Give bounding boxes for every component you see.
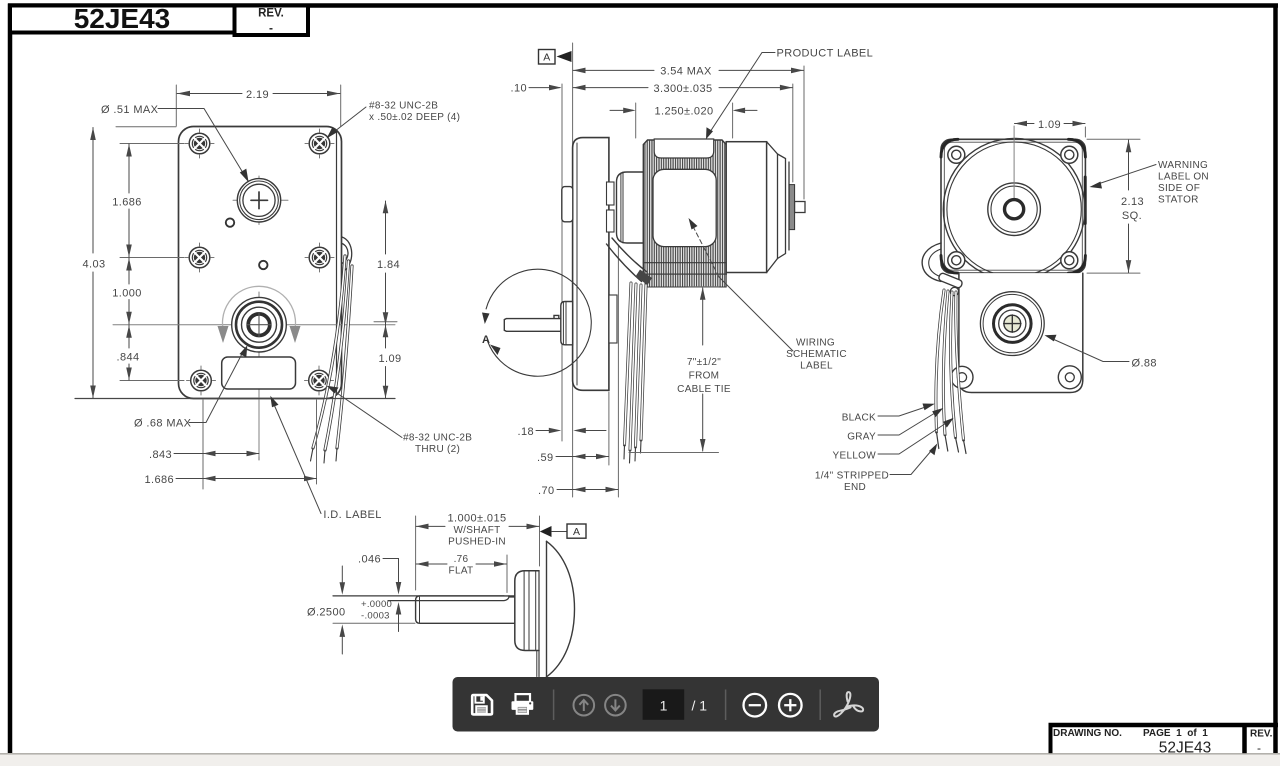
svg-text:PAGE 1 of 1: PAGE 1 of 1 xyxy=(1143,728,1208,739)
svg-text:2.19: 2.19 xyxy=(246,89,269,101)
svg-text:DRAWING NO.: DRAWING NO. xyxy=(1053,728,1122,739)
svg-text:3.54 MAX: 3.54 MAX xyxy=(660,66,712,78)
svg-text:FLAT: FLAT xyxy=(449,565,474,576)
svg-text:1.09: 1.09 xyxy=(1038,119,1061,131)
svg-text:.843: .843 xyxy=(149,449,172,461)
svg-text:1.000±.015: 1.000±.015 xyxy=(448,513,507,525)
svg-text:LABEL ON: LABEL ON xyxy=(1158,172,1209,183)
svg-text:-: - xyxy=(1257,741,1261,755)
svg-text:THRU (2): THRU (2) xyxy=(415,444,460,455)
svg-text:.76: .76 xyxy=(454,554,469,565)
svg-text:SIDE OF: SIDE OF xyxy=(1158,183,1200,194)
svg-text:Ø .51 MAX: Ø .51 MAX xyxy=(101,104,159,116)
svg-text:PRODUCT LABEL: PRODUCT LABEL xyxy=(777,48,874,60)
svg-text:REV.: REV. xyxy=(1250,729,1273,740)
svg-text:3.300±.035: 3.300±.035 xyxy=(654,83,713,95)
svg-text:1.686: 1.686 xyxy=(112,197,142,209)
svg-text:A: A xyxy=(573,526,580,538)
svg-text:FROM: FROM xyxy=(689,371,720,382)
svg-text:#8-32 UNC-2B: #8-32 UNC-2B xyxy=(369,101,438,112)
svg-text:STATOR: STATOR xyxy=(1158,195,1199,206)
svg-text:1.686: 1.686 xyxy=(144,474,174,486)
svg-text:REV.: REV. xyxy=(258,8,284,20)
svg-text:.70: .70 xyxy=(538,485,555,497)
svg-text:A: A xyxy=(482,334,490,346)
svg-text:1: 1 xyxy=(660,698,668,714)
svg-text:GRAY: GRAY xyxy=(847,432,876,443)
svg-text:.59: .59 xyxy=(537,452,554,464)
svg-text:/ 1: / 1 xyxy=(692,698,708,714)
svg-text:PUSHED-IN: PUSHED-IN xyxy=(448,537,506,548)
svg-text:Ø.88: Ø.88 xyxy=(1132,358,1157,370)
svg-text:+.0000: +.0000 xyxy=(361,599,392,610)
svg-text:52JE43: 52JE43 xyxy=(74,3,171,34)
svg-text:7"±1/2": 7"±1/2" xyxy=(687,357,721,368)
svg-text:1/4" STRIPPED: 1/4" STRIPPED xyxy=(815,471,889,482)
svg-text:YELLOW: YELLOW xyxy=(833,451,877,462)
svg-text:SCHEMATIC: SCHEMATIC xyxy=(786,349,847,360)
svg-text:Ø .68 MAX: Ø .68 MAX xyxy=(134,418,192,430)
svg-text:1.000: 1.000 xyxy=(112,287,142,299)
svg-text:2.13: 2.13 xyxy=(1121,196,1144,208)
svg-text:END: END xyxy=(844,482,866,493)
svg-text:WARNING: WARNING xyxy=(1158,160,1208,171)
svg-text:1.250±.020: 1.250±.020 xyxy=(655,106,714,118)
svg-text:-.0003: -.0003 xyxy=(361,611,390,622)
svg-text:BLACK: BLACK xyxy=(842,413,876,424)
svg-text:.046: .046 xyxy=(358,553,381,565)
svg-text:A: A xyxy=(543,52,550,64)
svg-text:.844: .844 xyxy=(116,351,139,363)
svg-text:1.84: 1.84 xyxy=(377,259,400,271)
svg-text:SQ.: SQ. xyxy=(1122,210,1142,222)
svg-text:x .50±.02 DEEP (4): x .50±.02 DEEP (4) xyxy=(369,112,460,123)
svg-text:4.03: 4.03 xyxy=(82,259,105,271)
svg-text:-: - xyxy=(269,21,273,35)
svg-text:1.09: 1.09 xyxy=(378,353,401,365)
svg-text:I.D. LABEL: I.D. LABEL xyxy=(323,509,381,521)
svg-text:LABEL: LABEL xyxy=(800,361,833,372)
svg-text:#8-32 UNC-2B: #8-32 UNC-2B xyxy=(403,433,472,444)
svg-text:W/SHAFT: W/SHAFT xyxy=(453,525,500,536)
svg-text:Ø.2500: Ø.2500 xyxy=(307,607,345,619)
svg-text:WIRING: WIRING xyxy=(796,338,835,349)
svg-text:CABLE TIE: CABLE TIE xyxy=(677,384,731,395)
svg-text:.18: .18 xyxy=(518,426,535,438)
svg-text:.10: .10 xyxy=(511,83,528,95)
